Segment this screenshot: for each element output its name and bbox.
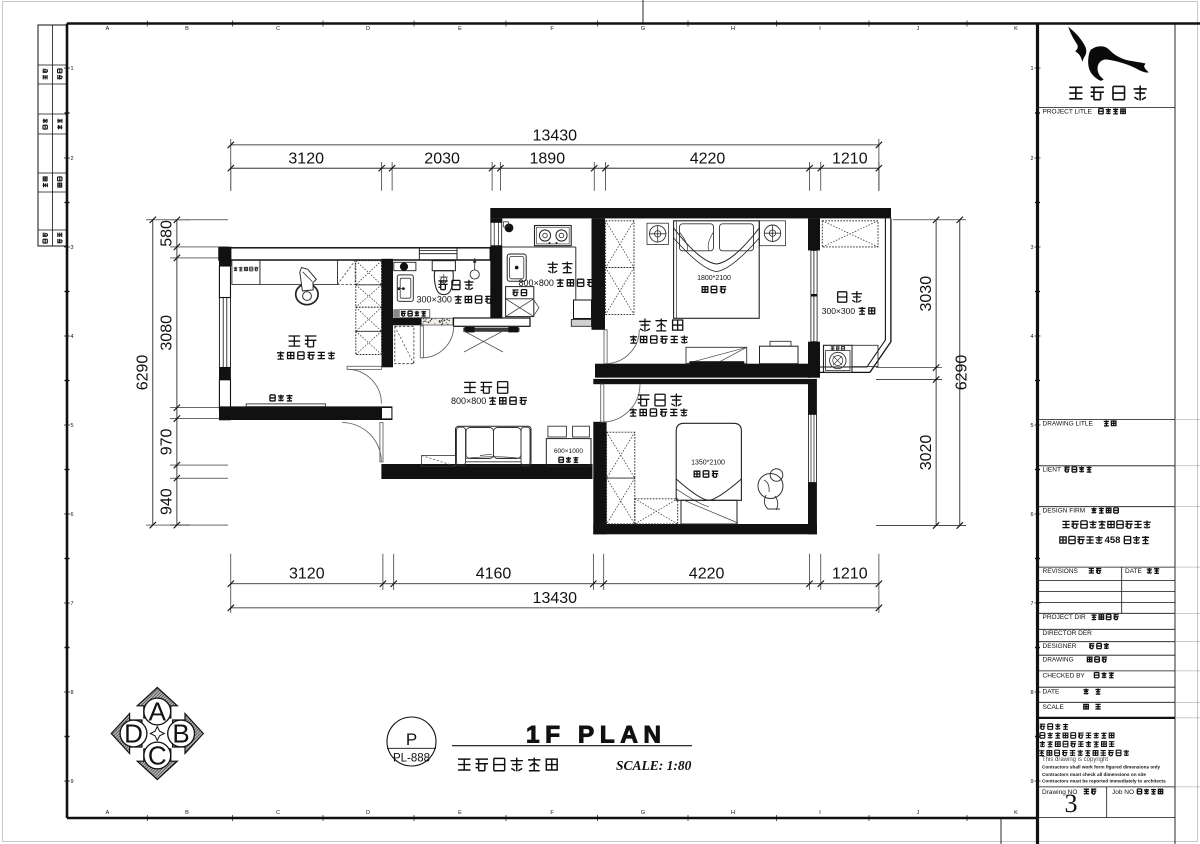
- svg-text:Contractors must check all dim: Contractors must check all dimensions on…: [1042, 772, 1146, 777]
- svg-text:D: D: [366, 810, 370, 816]
- svg-text:3020: 3020: [918, 435, 935, 471]
- svg-text:300×300: 300×300: [417, 295, 452, 305]
- svg-text:B: B: [185, 26, 189, 32]
- svg-text:2030: 2030: [424, 151, 460, 168]
- svg-text:6: 6: [71, 512, 74, 518]
- svg-text:6: 6: [1030, 512, 1033, 518]
- svg-text:5: 5: [1030, 423, 1033, 429]
- svg-text:DRAWING: DRAWING: [1043, 657, 1074, 664]
- svg-text:LIENT: LIENT: [1043, 467, 1061, 474]
- svg-text:H: H: [731, 810, 735, 816]
- svg-text:PL-888: PL-888: [393, 753, 430, 765]
- svg-text:E: E: [458, 26, 462, 32]
- svg-text:SCALE: 1:80: SCALE: 1:80: [616, 758, 692, 773]
- svg-text:2: 2: [71, 156, 74, 162]
- svg-text:6290: 6290: [135, 355, 152, 391]
- svg-text:13430: 13430: [533, 590, 578, 607]
- svg-text:B: B: [185, 810, 189, 816]
- svg-text:970: 970: [159, 428, 176, 455]
- svg-text:3030: 3030: [918, 276, 935, 312]
- svg-text:13430: 13430: [533, 128, 578, 145]
- svg-text:1: 1: [1030, 66, 1033, 72]
- svg-text:940: 940: [159, 488, 176, 515]
- svg-text:DESIGNER: DESIGNER: [1043, 643, 1077, 650]
- svg-text:1890: 1890: [530, 151, 566, 168]
- svg-text:PROJECT DIR: PROJECT DIR: [1043, 614, 1087, 621]
- svg-text:K: K: [1014, 810, 1018, 816]
- svg-text:REVISIONS: REVISIONS: [1043, 568, 1079, 575]
- svg-text:1210: 1210: [832, 566, 868, 583]
- svg-text:4220: 4220: [690, 151, 726, 168]
- svg-text:4: 4: [1030, 334, 1033, 340]
- svg-text:3080: 3080: [159, 315, 176, 351]
- svg-text:J: J: [917, 26, 920, 32]
- svg-text:1210: 1210: [832, 151, 868, 168]
- svg-text:D: D: [366, 26, 370, 32]
- svg-text:800×800: 800×800: [519, 278, 554, 288]
- svg-text:9: 9: [71, 779, 74, 785]
- svg-text:2: 2: [1030, 156, 1033, 162]
- svg-text:458: 458: [1105, 535, 1121, 546]
- svg-text:6290: 6290: [954, 355, 971, 391]
- svg-text:This drawing is copyright: This drawing is copyright: [1042, 757, 1108, 763]
- svg-text:CHECKED BY: CHECKED BY: [1043, 672, 1086, 679]
- svg-text:DESIGN FIRM: DESIGN FIRM: [1043, 508, 1086, 515]
- svg-text:DATE: DATE: [1043, 689, 1061, 696]
- svg-text:B: B: [172, 719, 189, 749]
- svg-text:5: 5: [71, 423, 74, 429]
- svg-text:4220: 4220: [689, 566, 725, 583]
- svg-text:3: 3: [71, 245, 74, 251]
- svg-text:Job NO: Job NO: [1112, 789, 1134, 796]
- svg-text:1: 1: [71, 66, 74, 72]
- svg-text:8: 8: [71, 690, 74, 696]
- svg-text:800×800: 800×800: [451, 396, 486, 406]
- svg-text:K: K: [1014, 26, 1018, 32]
- svg-text:DRAWING LITLE: DRAWING LITLE: [1043, 421, 1094, 428]
- svg-text:1800*2100: 1800*2100: [697, 275, 731, 282]
- svg-text:A: A: [106, 810, 110, 816]
- svg-text:G: G: [641, 26, 645, 32]
- svg-text:4: 4: [71, 334, 74, 340]
- svg-text:J: J: [917, 810, 920, 816]
- svg-text:1F PLAN: 1F PLAN: [526, 722, 667, 749]
- svg-text:3: 3: [1030, 245, 1033, 251]
- svg-text:SCALE: SCALE: [1043, 704, 1065, 711]
- svg-text:Contractors must be reported i: Contractors must be reported immediately…: [1042, 778, 1166, 783]
- svg-text:H: H: [731, 26, 735, 32]
- svg-text:DATE: DATE: [1125, 568, 1143, 575]
- svg-text:A: A: [149, 697, 167, 727]
- svg-text:P: P: [406, 730, 417, 749]
- svg-text:C: C: [276, 810, 280, 816]
- svg-text:C: C: [148, 741, 167, 771]
- svg-text:DIRECTOR DER: DIRECTOR DER: [1043, 630, 1093, 637]
- svg-text:A: A: [106, 26, 110, 32]
- svg-text:4160: 4160: [476, 566, 512, 583]
- svg-text:PROJECT LITLE: PROJECT LITLE: [1043, 109, 1093, 116]
- svg-text:300×300: 300×300: [822, 306, 856, 316]
- svg-text:600×1000: 600×1000: [554, 448, 583, 455]
- svg-text:3: 3: [1065, 789, 1078, 818]
- svg-text:3120: 3120: [289, 566, 325, 583]
- svg-text:3120: 3120: [288, 151, 324, 168]
- svg-text:7: 7: [1030, 601, 1033, 607]
- svg-text:Contractors shall work form fi: Contractors shall work form figured dime…: [1042, 764, 1160, 769]
- svg-text:1350*2100: 1350*2100: [691, 460, 725, 467]
- svg-text:D: D: [124, 719, 143, 749]
- svg-text:C: C: [276, 26, 280, 32]
- svg-text:580: 580: [159, 220, 176, 247]
- svg-text:E: E: [458, 810, 462, 816]
- svg-text:G: G: [641, 810, 645, 816]
- svg-text:8: 8: [1030, 690, 1033, 696]
- svg-text:7: 7: [71, 601, 74, 607]
- svg-text:9: 9: [1030, 779, 1033, 785]
